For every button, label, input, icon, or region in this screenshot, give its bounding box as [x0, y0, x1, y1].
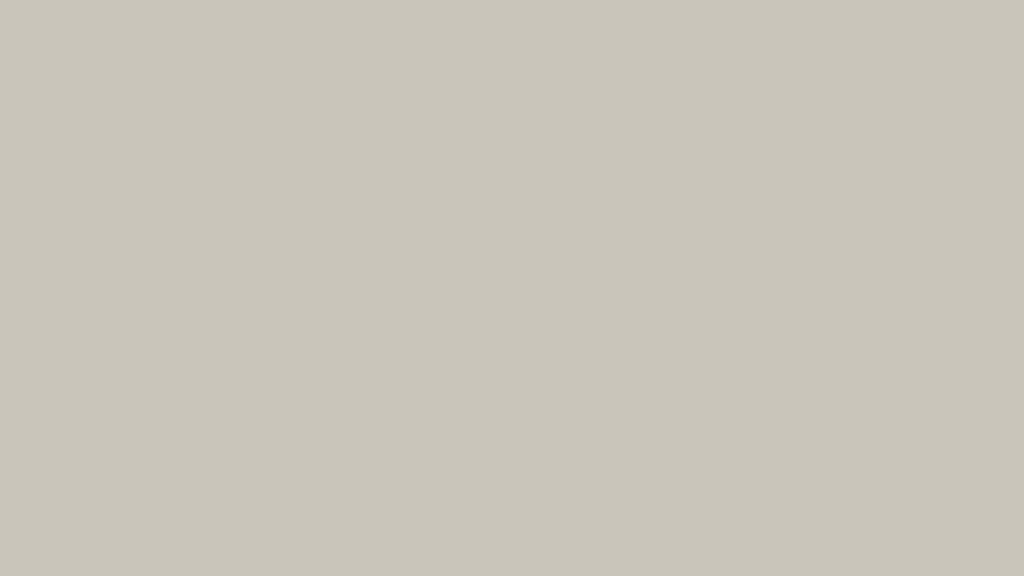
base-ground [0, 0, 1024, 576]
aerial-render: Aerial architectural rendering of an urb… [0, 0, 1024, 576]
masterplan-scene [0, 0, 1024, 576]
